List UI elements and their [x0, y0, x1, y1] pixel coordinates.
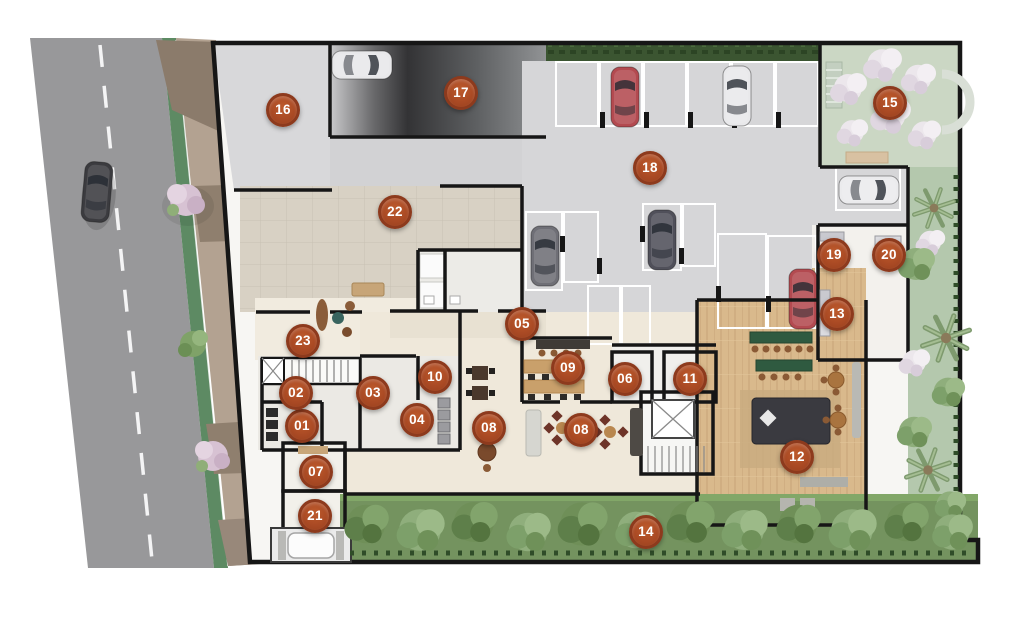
plan-marker-08[interactable]: 08 — [472, 411, 506, 445]
plan-marker-01[interactable]: 01 — [285, 409, 319, 443]
plan-marker-06[interactable]: 06 — [608, 362, 642, 396]
plan-marker-14[interactable]: 14 — [629, 515, 663, 549]
plan-marker-12[interactable]: 12 — [780, 440, 814, 474]
site-plan-canvas: 0102030405060708080910111213141516171819… — [0, 0, 1024, 621]
plan-marker-08[interactable]: 08 — [564, 413, 598, 447]
plan-marker-20[interactable]: 20 — [872, 238, 906, 272]
plan-marker-11[interactable]: 11 — [673, 362, 707, 396]
plan-marker-02[interactable]: 02 — [279, 376, 313, 410]
plan-marker-09[interactable]: 09 — [551, 351, 585, 385]
plan-marker-10[interactable]: 10 — [418, 360, 452, 394]
plan-marker-07[interactable]: 07 — [299, 455, 333, 489]
plan-marker-13[interactable]: 13 — [820, 297, 854, 331]
plan-marker-05[interactable]: 05 — [505, 307, 539, 341]
plan-marker-15[interactable]: 15 — [873, 86, 907, 120]
plan-marker-16[interactable]: 16 — [266, 93, 300, 127]
plan-marker-19[interactable]: 19 — [817, 238, 851, 272]
plan-marker-23[interactable]: 23 — [286, 324, 320, 358]
plan-marker-21[interactable]: 21 — [298, 499, 332, 533]
markers-layer: 0102030405060708080910111213141516171819… — [0, 0, 1024, 621]
plan-marker-04[interactable]: 04 — [400, 403, 434, 437]
plan-marker-17[interactable]: 17 — [444, 76, 478, 110]
plan-marker-22[interactable]: 22 — [378, 195, 412, 229]
plan-marker-03[interactable]: 03 — [356, 376, 390, 410]
plan-marker-18[interactable]: 18 — [633, 151, 667, 185]
